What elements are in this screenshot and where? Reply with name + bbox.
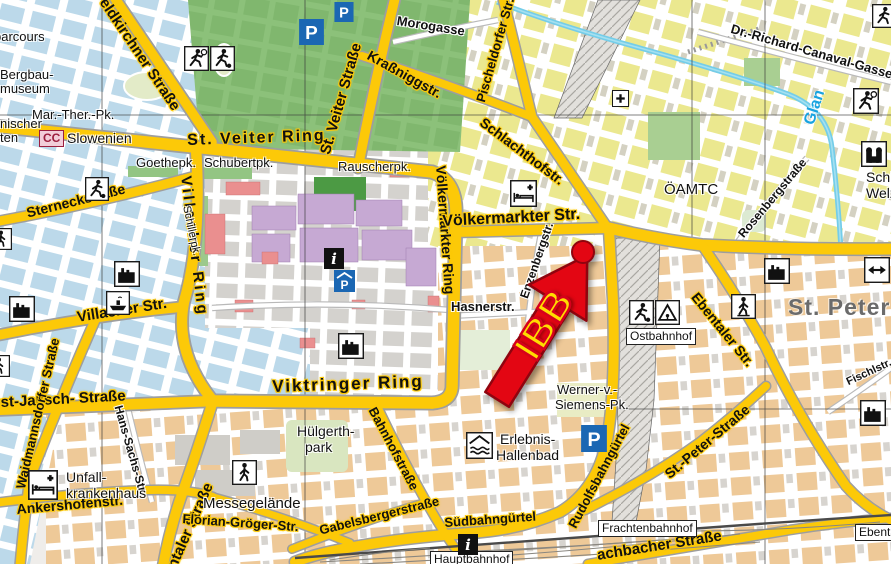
parking-garage-icon: P <box>334 270 355 292</box>
width-arrow-icon <box>864 257 890 283</box>
info-icon: i <box>458 534 478 555</box>
info-icon: i <box>324 248 344 269</box>
first-aid-cross-icon <box>612 90 629 107</box>
castle-icon <box>338 333 364 359</box>
castle-icon <box>114 261 140 287</box>
hospital-icon <box>510 180 537 207</box>
tennis-icon <box>853 88 879 114</box>
svg-text:P: P <box>340 278 348 292</box>
parking-icon: P <box>334 2 354 22</box>
swimming-pool-icon <box>466 432 493 459</box>
skater-icon <box>731 294 756 319</box>
parking-icon: P <box>299 19 324 45</box>
fort-icon <box>861 141 887 167</box>
parking-icon: P <box>581 425 607 452</box>
svg-text:P: P <box>305 23 318 44</box>
svg-text:P: P <box>339 5 349 21</box>
castle-icon <box>764 258 790 284</box>
castle-icon <box>9 296 35 322</box>
sports-icon <box>85 177 109 201</box>
svg-text:i: i <box>465 536 471 554</box>
tennis-icon <box>184 46 209 71</box>
walker-icon <box>0 355 10 377</box>
poi-icon <box>0 228 12 250</box>
hospital-icon <box>28 470 58 500</box>
shelter-icon <box>655 300 680 325</box>
svg-text:P: P <box>587 429 600 451</box>
ship-icon <box>106 291 130 315</box>
walker-icon <box>232 460 257 485</box>
castle-icon <box>860 400 886 426</box>
sports-icon <box>872 4 891 28</box>
icon-layer: P P P P i i <box>0 0 891 564</box>
soccer-icon <box>629 300 654 325</box>
soccer-icon <box>210 46 235 71</box>
city-map: St. Veiter Ring Viktringer Ring Völkerma… <box>0 0 891 564</box>
svg-text:i: i <box>331 250 337 268</box>
